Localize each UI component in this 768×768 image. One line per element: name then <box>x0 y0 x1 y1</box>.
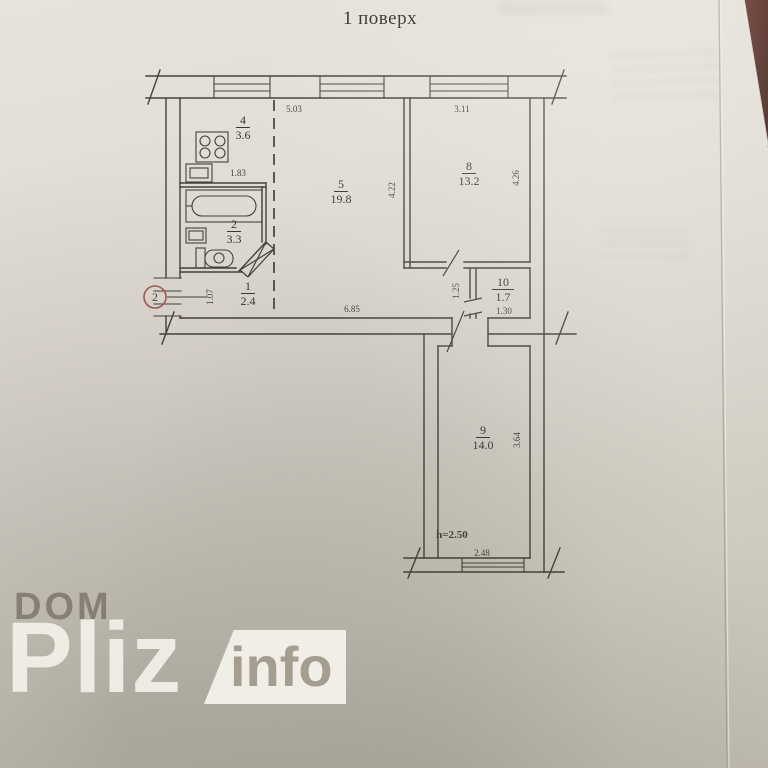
window-symbol <box>462 558 524 572</box>
entrance-stamp-number: 2 <box>152 290 158 304</box>
dim-room8-top: 3.11 <box>454 104 469 114</box>
door-symbols <box>240 242 482 352</box>
dim-room9-bottom: 2.48 <box>474 548 490 558</box>
dim-room9-side: 3.64 <box>512 432 522 448</box>
dim-room10-bottom: 1.30 <box>496 306 512 316</box>
dim-kitchen-bottom: 1.83 <box>230 168 246 178</box>
room-4-area: 3.6 <box>236 128 251 142</box>
room-labels: 4 3.6 5 19.8 8 13.2 2 3.3 1 2.4 <box>227 113 511 452</box>
scanned-floorplan-photo: 1 поверх <box>0 0 768 768</box>
stove-symbol <box>196 132 228 162</box>
dim-hall-side: 1.25 <box>451 283 461 299</box>
door-stroke-room10-a <box>464 298 482 302</box>
dim-room5-top: 5.03 <box>286 104 302 114</box>
fraction-underlines <box>227 128 514 438</box>
dim-corridor-bottom: 6.85 <box>344 304 360 314</box>
room-10-area: 1.7 <box>496 290 511 304</box>
room-2-number: 2 <box>231 217 237 231</box>
bathroom-door-leaf <box>240 242 274 277</box>
dim-ceiling-height: h=2.50 <box>436 529 468 541</box>
door-stroke-room8 <box>443 250 459 276</box>
walls <box>146 70 576 578</box>
dimension-labels: 5.03 3.11 4.22 4.26 1.83 1.07 6.85 1.25 … <box>205 104 522 558</box>
kitchen-sink-symbol <box>186 164 212 182</box>
table-corner <box>744 0 768 148</box>
toilet-symbol <box>196 248 233 268</box>
room-8-number: 8 <box>466 159 472 173</box>
fixtures <box>186 132 262 268</box>
room-5-number: 5 <box>338 177 344 191</box>
wall-break-hatch <box>148 70 568 578</box>
room-9-area: 14.0 <box>473 438 494 452</box>
room-8-area: 13.2 <box>459 174 480 188</box>
door-stroke-room10-b <box>464 312 482 316</box>
washbasin-symbol <box>186 228 206 243</box>
door-stroke-room9 <box>447 311 464 352</box>
room-10-number: 10 <box>497 275 509 289</box>
room-5-area: 19.8 <box>331 192 352 206</box>
room-2-area: 3.3 <box>227 232 242 246</box>
room-1-area: 2.4 <box>241 294 256 308</box>
dim-room8-side: 4.26 <box>511 170 521 186</box>
watermark-pliz: Pliz <box>6 608 182 708</box>
room-4-number: 4 <box>240 113 246 127</box>
fold-crease <box>719 0 729 768</box>
room-1-number: 1 <box>245 279 251 293</box>
dim-room5-side: 4.22 <box>387 182 397 198</box>
entrance-stamp: 2 <box>144 286 207 308</box>
room-9-number: 9 <box>480 423 486 437</box>
window-symbol <box>214 76 508 98</box>
bathtub-symbol <box>186 190 262 222</box>
